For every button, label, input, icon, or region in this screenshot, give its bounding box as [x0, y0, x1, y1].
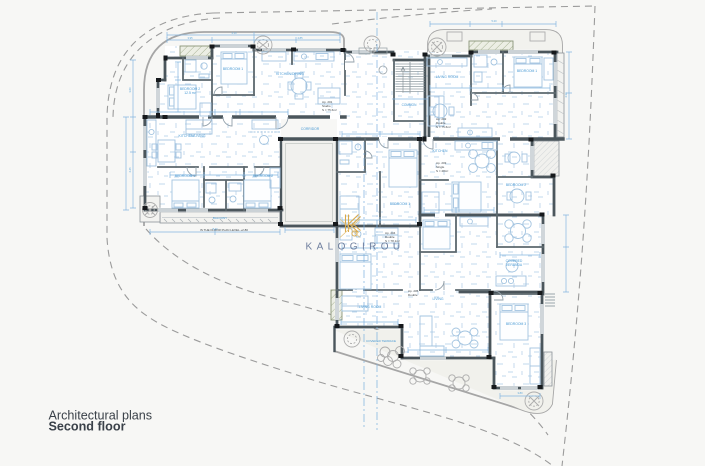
svg-text:BEDROOM 1: BEDROOM 1 — [175, 174, 195, 178]
svg-text:BEDROOM 2: BEDROOM 2 — [253, 174, 273, 178]
svg-text:3.95: 3.95 — [187, 36, 193, 40]
svg-text:LIVING: LIVING — [432, 297, 443, 301]
svg-text:VERANDA: VERANDA — [506, 263, 523, 267]
svg-text:S = 75.6m²: S = 75.6m² — [322, 108, 337, 112]
svg-text:BEDROOM 1: BEDROOM 1 — [390, 202, 410, 206]
svg-text:4.45: 4.45 — [128, 167, 132, 173]
svg-text:4.30: 4.30 — [564, 92, 568, 98]
svg-text:4.85: 4.85 — [297, 36, 303, 40]
svg-text:BEDROOM 1: BEDROOM 1 — [517, 69, 537, 73]
svg-text:COMMON: COMMON — [402, 103, 418, 107]
svg-text:Double: Double — [408, 293, 418, 297]
svg-text:S = 48m²: S = 48m² — [436, 169, 448, 173]
svg-text:BALCONY: BALCONY — [213, 216, 227, 220]
svg-text:S = 75.6m²: S = 75.6m² — [436, 125, 451, 129]
svg-text:4.10: 4.10 — [231, 31, 237, 35]
svg-text:KITCHEN: KITCHEN — [433, 149, 448, 153]
svg-text:BEDROOM 2: BEDROOM 2 — [506, 183, 526, 187]
svg-text:3.60: 3.60 — [128, 87, 132, 93]
svg-text:5.20: 5.20 — [491, 19, 497, 23]
svg-text:BEDROOM 1: BEDROOM 1 — [223, 67, 243, 71]
svg-text:KITCHEN/LIVING: KITCHEN/LIVING — [179, 134, 206, 138]
svg-text:LIVING ROOM: LIVING ROOM — [359, 305, 382, 309]
svg-text:Second floor: Second floor — [49, 420, 126, 434]
svg-text:COVERED TERRACE: COVERED TERRACE — [366, 339, 396, 343]
svg-text:CORRIDOR: CORRIDOR — [301, 127, 320, 131]
svg-text:BEDROOM 3: BEDROOM 3 — [506, 322, 526, 326]
svg-text:3.80: 3.80 — [517, 391, 523, 395]
svg-text:IS THE FLOOR PLAN LEVEL +2.80: IS THE FLOOR PLAN LEVEL +2.80 — [200, 228, 248, 232]
svg-text:12.5 m²: 12.5 m² — [184, 91, 196, 95]
svg-text:KITCHEN/DINING: KITCHEN/DINING — [276, 72, 304, 76]
svg-text:KALOGIROU: KALOGIROU — [306, 242, 405, 253]
svg-text:LIVING ROOM: LIVING ROOM — [436, 75, 459, 79]
